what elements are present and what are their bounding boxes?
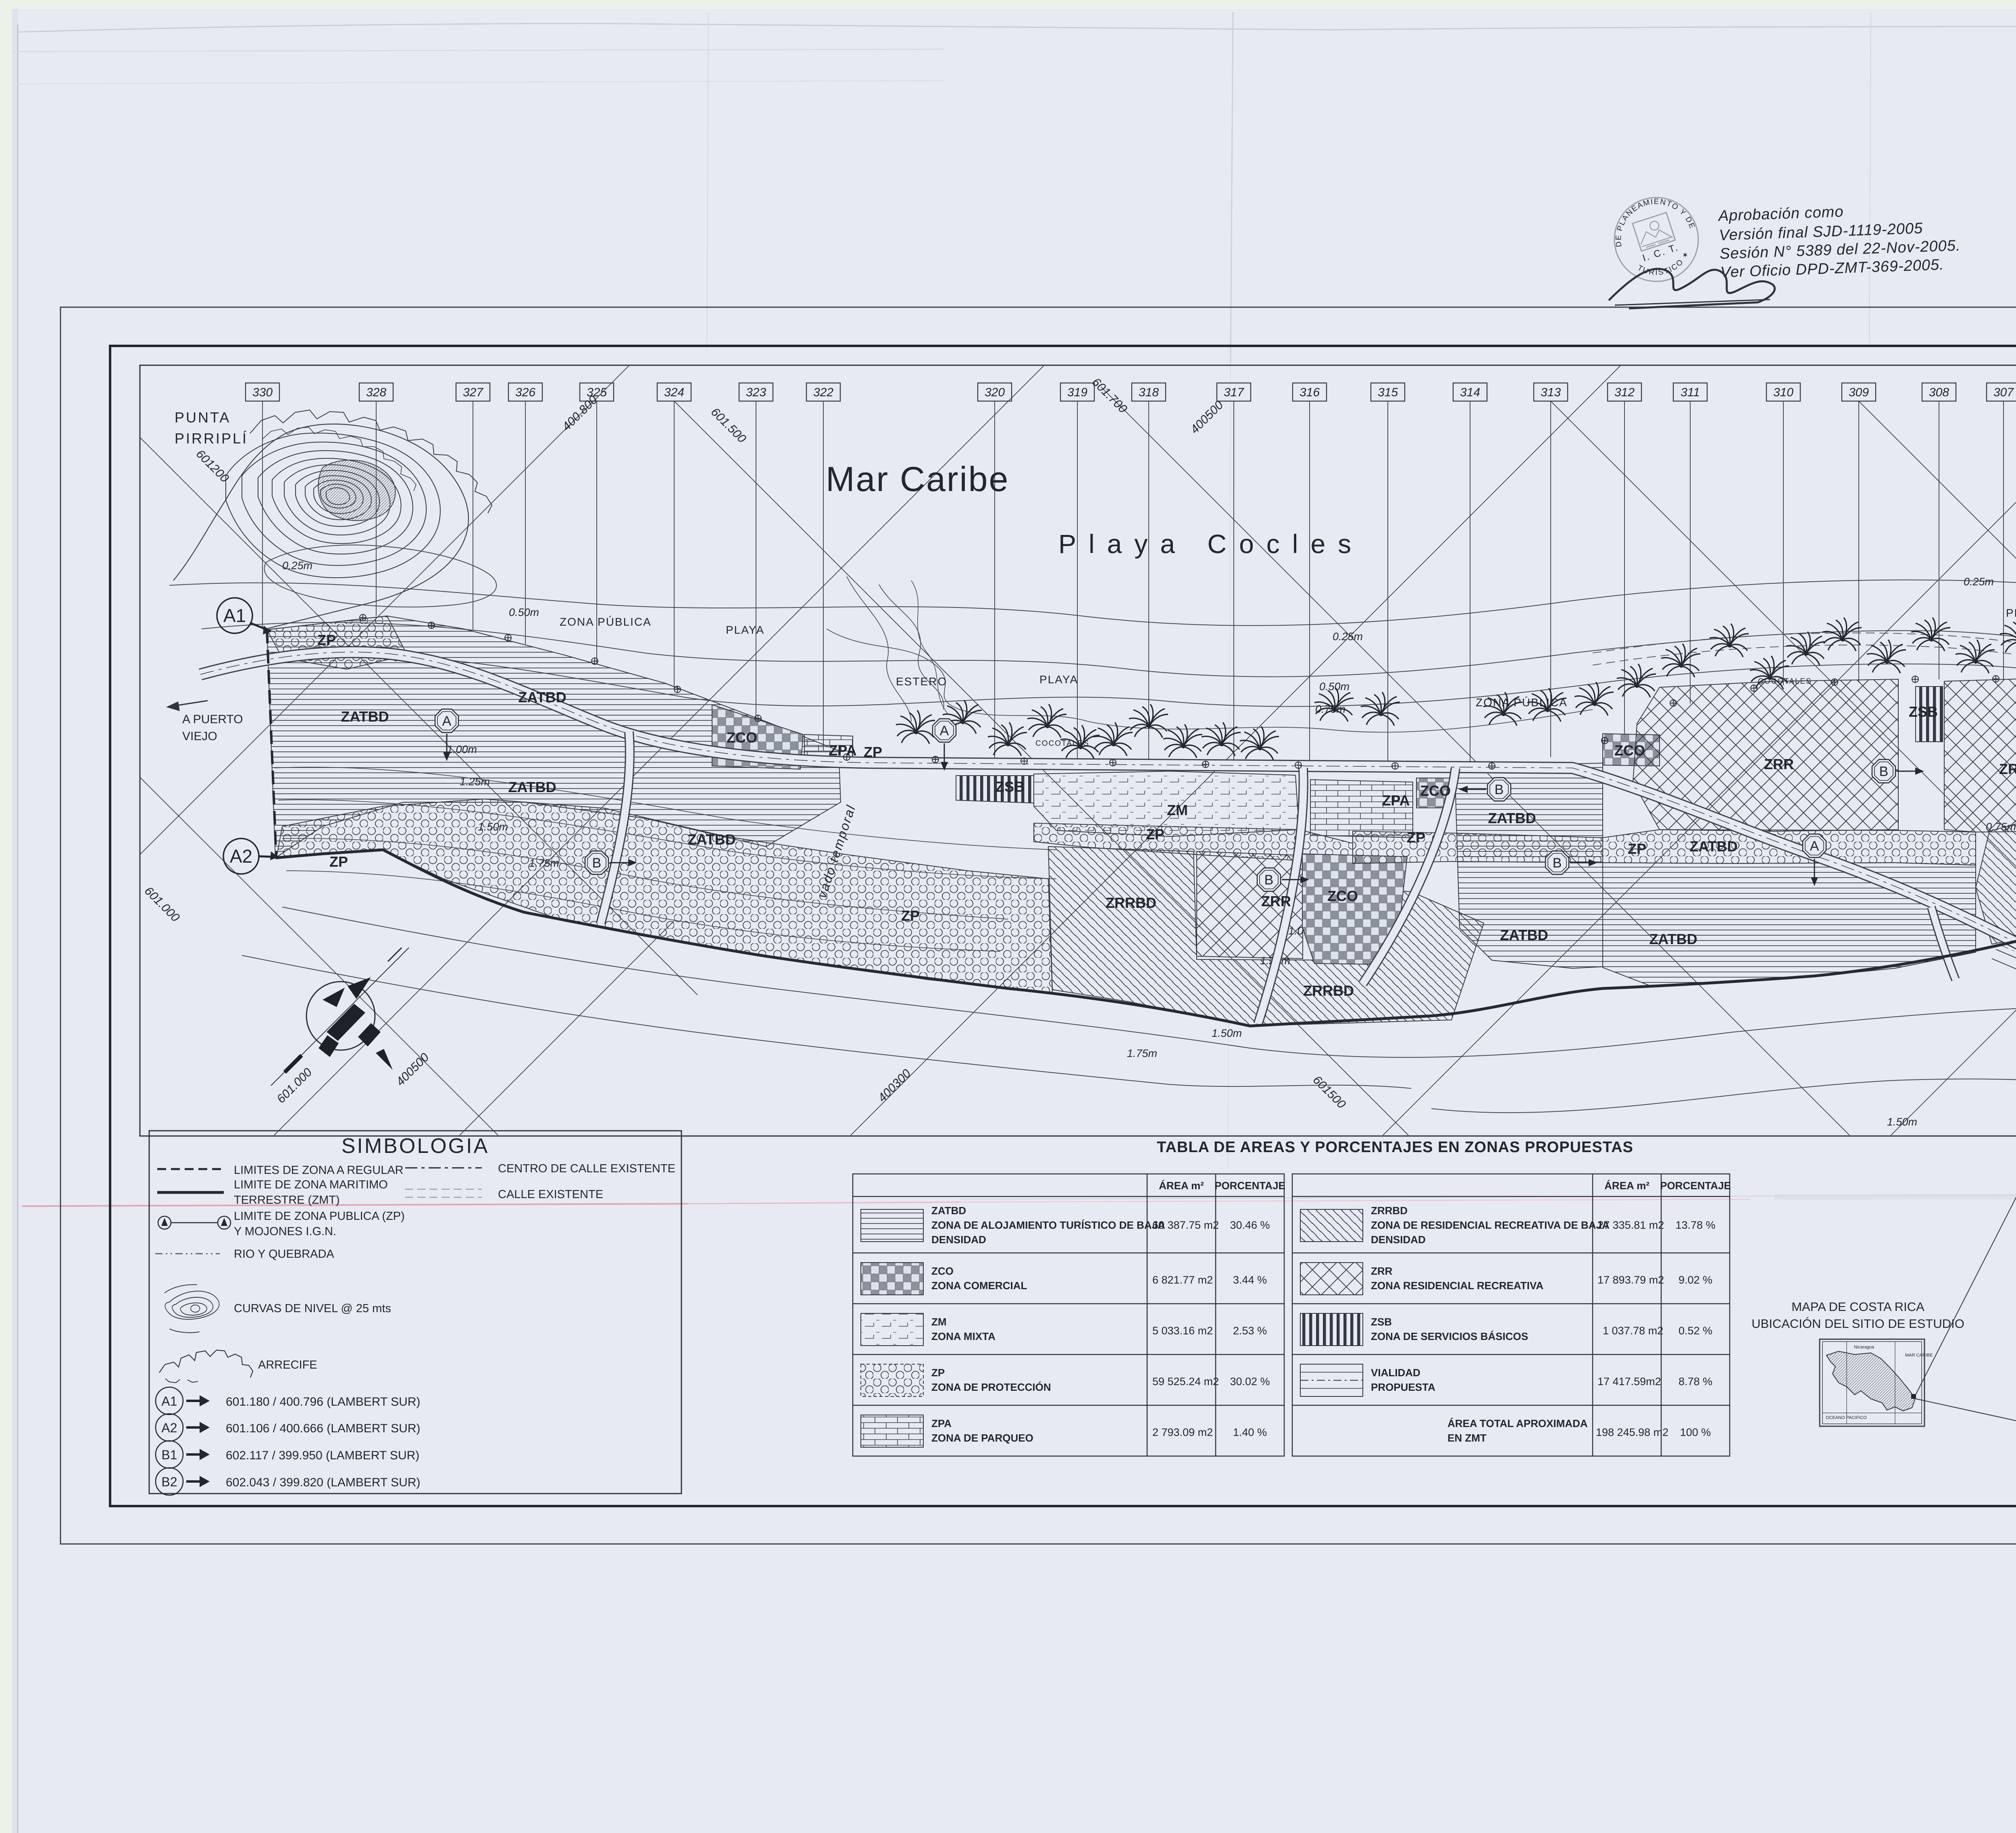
svg-text:PLAYA: PLAYA (2006, 607, 2016, 619)
svg-text:307: 307 (1993, 386, 2014, 399)
svg-text:MAR CARIBE: MAR CARIBE (1905, 1353, 1933, 1358)
svg-text:ZATBD: ZATBD (1649, 931, 1697, 947)
svg-text:320: 320 (985, 386, 1005, 399)
svg-text:Nicaragua: Nicaragua (1854, 1345, 1874, 1350)
svg-text:ZPA: ZPA (931, 1417, 952, 1429)
svg-text:ZATBD: ZATBD (687, 831, 735, 848)
svg-text:ZCO: ZCO (1614, 742, 1645, 759)
svg-text:TERRESTRE (ZMT): TERRESTRE (ZMT) (234, 1194, 340, 1207)
svg-text:ZP: ZP (1628, 841, 1646, 857)
svg-text:0.25m: 0.25m (1333, 630, 1363, 643)
svg-text:601.180 / 400.796 (LAMBERT SUR: 601.180 / 400.796 (LAMBERT SUR) (226, 1395, 421, 1409)
svg-text:319: 319 (1067, 386, 1087, 399)
svg-text:ZRR: ZRR (1999, 761, 2016, 777)
svg-text:EN ZMT: EN ZMT (1447, 1432, 1487, 1444)
svg-text:1 037.78 m2: 1 037.78 m2 (1603, 1325, 1663, 1337)
svg-text:UBICACIÓN DEL SITIO DE ESTUDIO: UBICACIÓN DEL SITIO DE ESTUDIO (1752, 1317, 1964, 1331)
svg-text:0.50m: 0.50m (509, 606, 539, 618)
svg-text:ZP: ZP (901, 907, 920, 924)
svg-text:PLAYA: PLAYA (1039, 673, 1078, 686)
svg-text:Y MOJONES I.G.N.: Y MOJONES I.G.N. (234, 1225, 336, 1238)
svg-text:ZP: ZP (1407, 829, 1425, 846)
svg-text:1.50m: 1.50m (1212, 1027, 1242, 1039)
svg-text:A1: A1 (223, 605, 246, 626)
svg-text:17 417.59m2: 17 417.59m2 (1597, 1375, 1661, 1388)
svg-text:308: 308 (1929, 386, 1949, 399)
svg-text:ZONA MIXTA: ZONA MIXTA (931, 1330, 996, 1342)
svg-text:30.02 %: 30.02 % (1230, 1375, 1270, 1388)
svg-text:0.52 %: 0.52 % (1679, 1325, 1712, 1337)
svg-text:Mar Caribe: Mar Caribe (826, 460, 1009, 499)
svg-text:1.75m: 1.75m (1127, 1047, 1157, 1059)
svg-text:SIMBOLOGIA: SIMBOLOGIA (342, 1134, 489, 1158)
svg-text:ZRR: ZRR (1764, 756, 1794, 772)
svg-text:0.25m: 0.25m (1964, 576, 1994, 588)
svg-text:13.78 %: 13.78 % (1675, 1219, 1715, 1231)
svg-text:VIALIDAD: VIALIDAD (1371, 1367, 1420, 1379)
svg-text:60 387.75 m2: 60 387.75 m2 (1152, 1219, 1219, 1231)
svg-text:ZPA: ZPA (829, 742, 856, 759)
svg-text:LIMITE DE ZONA MARITIMO: LIMITE DE ZONA MARITIMO (234, 1178, 388, 1191)
svg-text:ÁREA m²: ÁREA m² (1604, 1180, 1649, 1192)
svg-text:323: 323 (746, 386, 766, 399)
svg-text:ZONA DE PROTECCIÓN: ZONA DE PROTECCIÓN (931, 1381, 1051, 1393)
svg-text:5 033.16 m2: 5 033.16 m2 (1152, 1325, 1213, 1337)
svg-text:A: A (940, 723, 949, 739)
svg-text:B: B (1495, 782, 1504, 797)
svg-text:313: 313 (1541, 386, 1561, 399)
svg-text:ZONA DE RESIDENCIAL RECREATIVA: ZONA DE RESIDENCIAL RECREATIVA DE BAJA (1371, 1219, 1610, 1231)
svg-text:B2: B2 (161, 1475, 177, 1489)
svg-text:ZP: ZP (329, 853, 348, 870)
svg-text:316: 316 (1300, 386, 1320, 399)
svg-text:DENSIDAD: DENSIDAD (1371, 1234, 1426, 1246)
svg-text:Playa Cocles: Playa Cocles (1058, 529, 1364, 559)
svg-text:PORCENTAJE: PORCENTAJE (1214, 1180, 1285, 1192)
svg-text:ZATBD: ZATBD (1689, 838, 1737, 855)
svg-text:A2: A2 (161, 1421, 177, 1435)
svg-text:ZP: ZP (1146, 826, 1164, 843)
svg-text:ARRECIFE: ARRECIFE (258, 1359, 317, 1371)
svg-text:PIRRIPLÍ: PIRRIPLÍ (175, 430, 248, 447)
svg-text:ZATBD: ZATBD (508, 779, 556, 795)
svg-text:VIEJO: VIEJO (182, 730, 217, 743)
svg-text:315: 315 (1378, 386, 1398, 399)
svg-text:ZONA PÚBLICA: ZONA PÚBLICA (560, 616, 652, 628)
svg-text:ZM: ZM (931, 1316, 947, 1328)
svg-text:ZCO: ZCO (931, 1265, 954, 1277)
svg-text:TABLA DE AREAS Y PORCENTAJES E: TABLA DE AREAS Y PORCENTAJES EN ZONAS PR… (1157, 1139, 1633, 1156)
svg-text:A PUERTO: A PUERTO (182, 713, 243, 726)
svg-text:311: 311 (1681, 386, 1700, 399)
svg-text:ZCO: ZCO (1420, 782, 1451, 799)
svg-text:326: 326 (515, 386, 535, 399)
svg-text:PROPUESTA: PROPUESTA (1371, 1381, 1435, 1393)
svg-text:CENTRO DE CALLE EXISTENTE: CENTRO DE CALLE EXISTENTE (498, 1162, 675, 1175)
svg-text:B: B (1879, 764, 1889, 779)
svg-text:ÁREA m²: ÁREA m² (1159, 1180, 1204, 1192)
svg-text:B: B (592, 855, 602, 871)
svg-text:17 893.79 m2: 17 893.79 m2 (1597, 1274, 1664, 1286)
svg-text:CALLE EXISTENTE: CALLE EXISTENTE (498, 1188, 603, 1201)
svg-text:ZSB: ZSB (996, 778, 1025, 795)
svg-text:COCOTALES: COCOTALES (1035, 739, 1089, 748)
svg-text:ZSB: ZSB (1909, 703, 1938, 720)
svg-text:MAPA DE COSTA RICA: MAPA DE COSTA RICA (1791, 1300, 1924, 1314)
svg-text:ZATBD: ZATBD (518, 689, 566, 705)
svg-text:317: 317 (1224, 386, 1244, 399)
svg-text:3.44 %: 3.44 % (1233, 1274, 1267, 1286)
svg-text:OCEANO PACIFICO: OCEANO PACIFICO (1826, 1415, 1867, 1420)
svg-text:ZRR: ZRR (1371, 1265, 1393, 1277)
svg-text:A: A (442, 714, 452, 729)
svg-text:312: 312 (1614, 386, 1635, 399)
svg-text:ZONA COMERCIAL: ZONA COMERCIAL (931, 1280, 1027, 1292)
svg-text:27 335.81 m2: 27 335.81 m2 (1597, 1219, 1664, 1231)
svg-text:ZSB: ZSB (1371, 1316, 1392, 1328)
svg-text:ZONA DE PARQUEO: ZONA DE PARQUEO (931, 1432, 1033, 1444)
svg-text:2.53 %: 2.53 % (1233, 1325, 1267, 1337)
svg-text:ZONA DE SERVICIOS BÁSICOS: ZONA DE SERVICIOS BÁSICOS (1371, 1330, 1528, 1342)
svg-text:ZRRBD: ZRRBD (1303, 982, 1354, 999)
svg-text:324: 324 (664, 386, 684, 399)
svg-text:ZONA DE ALOJAMIENTO TURÍSTICO: ZONA DE ALOJAMIENTO TURÍSTICO DE BAJA (931, 1219, 1165, 1231)
svg-text:ZATBD: ZATBD (931, 1205, 966, 1217)
svg-text:327: 327 (463, 386, 483, 399)
svg-text:DENSIDAD: DENSIDAD (931, 1234, 986, 1246)
svg-text:A: A (1810, 838, 1819, 854)
svg-text:1.50m: 1.50m (1887, 1116, 1917, 1128)
svg-text:ÁREA TOTAL APROXIMADA: ÁREA TOTAL APROXIMADA (1447, 1417, 1588, 1429)
svg-text:0.50m: 0.50m (1319, 680, 1350, 693)
svg-text:ZATBD: ZATBD (1500, 927, 1548, 943)
svg-text:B: B (1264, 872, 1274, 888)
svg-text:0.25m: 0.25m (282, 560, 312, 572)
svg-text:59 525.24 m2: 59 525.24 m2 (1152, 1375, 1219, 1388)
svg-text:ZP: ZP (864, 744, 882, 760)
svg-text:ZCO: ZCO (1327, 888, 1358, 904)
svg-text:ZONA RESIDENCIAL RECREATIVA: ZONA RESIDENCIAL RECREATIVA (1371, 1280, 1543, 1292)
svg-text:PUNTA: PUNTA (175, 409, 231, 426)
svg-text:ZRR: ZRR (1261, 893, 1291, 909)
svg-text:318: 318 (1139, 386, 1159, 399)
svg-text:314: 314 (1460, 386, 1480, 399)
svg-text:COCOTALES: COCOTALES (1758, 677, 1812, 686)
svg-text:ZRRBD: ZRRBD (1371, 1205, 1408, 1217)
svg-text:6 821.77 m2: 6 821.77 m2 (1152, 1274, 1213, 1286)
svg-text:ZCO: ZCO (727, 729, 757, 746)
svg-text:322: 322 (813, 386, 833, 399)
svg-text:8.78 %: 8.78 % (1679, 1375, 1712, 1388)
svg-text:198 245.98 m2: 198 245.98 m2 (1596, 1426, 1668, 1438)
svg-text:100 %: 100 % (1680, 1426, 1711, 1438)
svg-text:B1: B1 (161, 1448, 177, 1462)
svg-text:PLAYA: PLAYA (726, 624, 764, 636)
svg-text:ZRRBD: ZRRBD (1106, 895, 1156, 911)
svg-text:309: 309 (1849, 386, 1869, 399)
svg-text:9.02 %: 9.02 % (1679, 1274, 1712, 1286)
svg-text:2 793.09 m2: 2 793.09 m2 (1152, 1426, 1213, 1438)
svg-text:30.46 %: 30.46 % (1230, 1219, 1270, 1231)
svg-text:ZATBD: ZATBD (1488, 810, 1536, 826)
svg-text:602.117 / 399.950 (LAMBERT SUR: 602.117 / 399.950 (LAMBERT SUR) (226, 1449, 419, 1462)
svg-text:601.106 / 400.666 (LAMBERT SUR: 601.106 / 400.666 (LAMBERT SUR) (226, 1422, 421, 1435)
svg-text:RIO Y QUEBRADA: RIO Y QUEBRADA (234, 1248, 334, 1261)
svg-text:B: B (1553, 855, 1562, 871)
svg-text:ZP: ZP (317, 632, 336, 648)
svg-text:PORCENTAJE: PORCENTAJE (1660, 1180, 1731, 1192)
svg-text:ESTERO: ESTERO (896, 675, 947, 688)
svg-text:CURVAS DE NIVEL @ 25 mts: CURVAS DE NIVEL @ 25 mts (234, 1302, 391, 1315)
svg-text:602.043 / 399.820 (LAMBERT SUR: 602.043 / 399.820 (LAMBERT SUR) (226, 1476, 421, 1489)
svg-text:LIMITES DE ZONA A REGULAR: LIMITES DE ZONA A REGULAR (234, 1164, 404, 1177)
svg-text:310: 310 (1773, 386, 1793, 399)
svg-text:A1: A1 (161, 1394, 177, 1409)
svg-text:A2: A2 (230, 846, 252, 867)
svg-text:330: 330 (252, 386, 273, 399)
svg-text:328: 328 (366, 386, 386, 399)
svg-text:ZP: ZP (931, 1367, 945, 1379)
svg-text:ZPA: ZPA (1382, 792, 1410, 809)
svg-text:1.40 %: 1.40 % (1233, 1426, 1267, 1438)
svg-text:LIMITE DE ZONA PUBLICA (ZP): LIMITE DE ZONA PUBLICA (ZP) (234, 1210, 405, 1223)
svg-text:ZATBD: ZATBD (341, 708, 389, 725)
svg-text:ZM: ZM (1167, 802, 1188, 818)
